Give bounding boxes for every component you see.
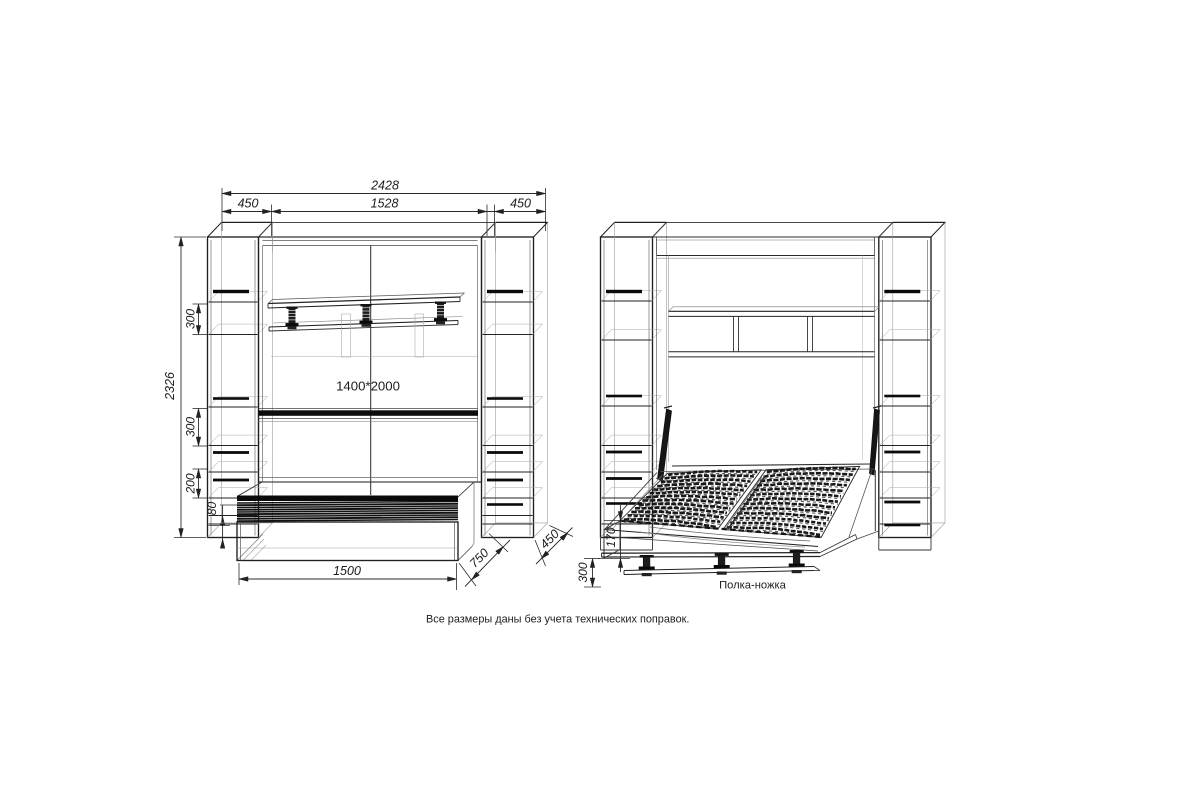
svg-text:300: 300 xyxy=(184,309,198,329)
svg-text:1500: 1500 xyxy=(333,564,361,578)
svg-text:300: 300 xyxy=(184,417,198,437)
svg-text:200: 200 xyxy=(184,473,198,494)
svg-text:750: 750 xyxy=(467,546,492,571)
svg-text:450: 450 xyxy=(510,197,531,211)
svg-text:450: 450 xyxy=(537,527,562,552)
svg-text:450: 450 xyxy=(238,197,259,211)
svg-text:Полка-ножка: Полка-ножка xyxy=(719,580,787,592)
svg-text:1400*2000: 1400*2000 xyxy=(336,379,400,394)
svg-text:2326: 2326 xyxy=(163,372,177,401)
svg-text:Все размеры даны без учета тех: Все размеры даны без учета технических п… xyxy=(426,614,689,626)
svg-text:2428: 2428 xyxy=(370,179,399,193)
svg-text:170: 170 xyxy=(604,527,618,547)
svg-text:300: 300 xyxy=(576,562,590,582)
svg-text:1528: 1528 xyxy=(371,197,399,211)
